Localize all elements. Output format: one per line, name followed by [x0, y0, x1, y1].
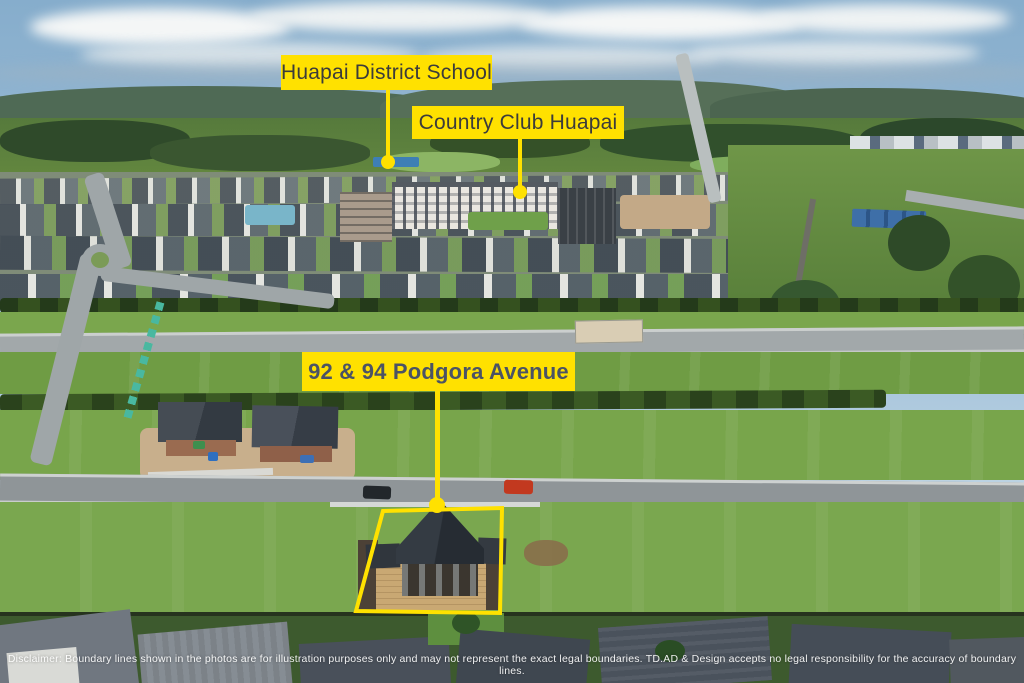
aerial-photo: Huapai District School Country Club Huap…	[0, 0, 1024, 683]
trees	[452, 612, 480, 634]
skip-bin	[300, 455, 314, 463]
portaloo	[208, 452, 218, 461]
callout-address: 92 & 94 Podgora Avenue	[302, 352, 575, 391]
industrial-row	[850, 136, 1024, 149]
trees	[888, 215, 950, 271]
cloud	[520, 6, 800, 40]
roundabout-island	[91, 252, 109, 268]
vehicle-red-van	[504, 480, 533, 495]
leader-line-address	[435, 390, 440, 500]
cloud	[250, 2, 550, 32]
construction-apartment	[340, 192, 392, 242]
lawn-block	[0, 502, 1024, 614]
vehicle-dark	[363, 486, 391, 500]
subject-house-wall	[402, 560, 478, 596]
marker-dot-address	[429, 497, 445, 513]
courtyard-lawn	[468, 212, 548, 230]
country-club-dark-wing	[558, 188, 616, 244]
callout-school: Huapai District School	[281, 55, 492, 90]
country-club-pool	[245, 205, 295, 225]
cloud	[760, 4, 1010, 34]
building-platform	[575, 319, 643, 343]
marker-dot-country-club	[513, 185, 527, 199]
marker-dot-school	[381, 155, 395, 169]
leader-line-school	[386, 90, 390, 158]
disclaimer-text: Disclaimer: Boundary lines shown in the …	[0, 653, 1024, 677]
construction-house-wall	[260, 446, 332, 462]
construction-dirt	[620, 195, 710, 229]
digger	[193, 441, 205, 449]
trees	[150, 135, 370, 171]
leader-line-country-club	[518, 137, 522, 189]
construction-house-roof	[158, 402, 242, 442]
school-pool-canopy	[373, 157, 419, 167]
construction-house-roof	[252, 405, 339, 448]
callout-country-club: Country Club Huapai	[412, 106, 624, 139]
dirt-patch	[524, 540, 568, 566]
subject-house-wing-roof	[366, 543, 401, 568]
